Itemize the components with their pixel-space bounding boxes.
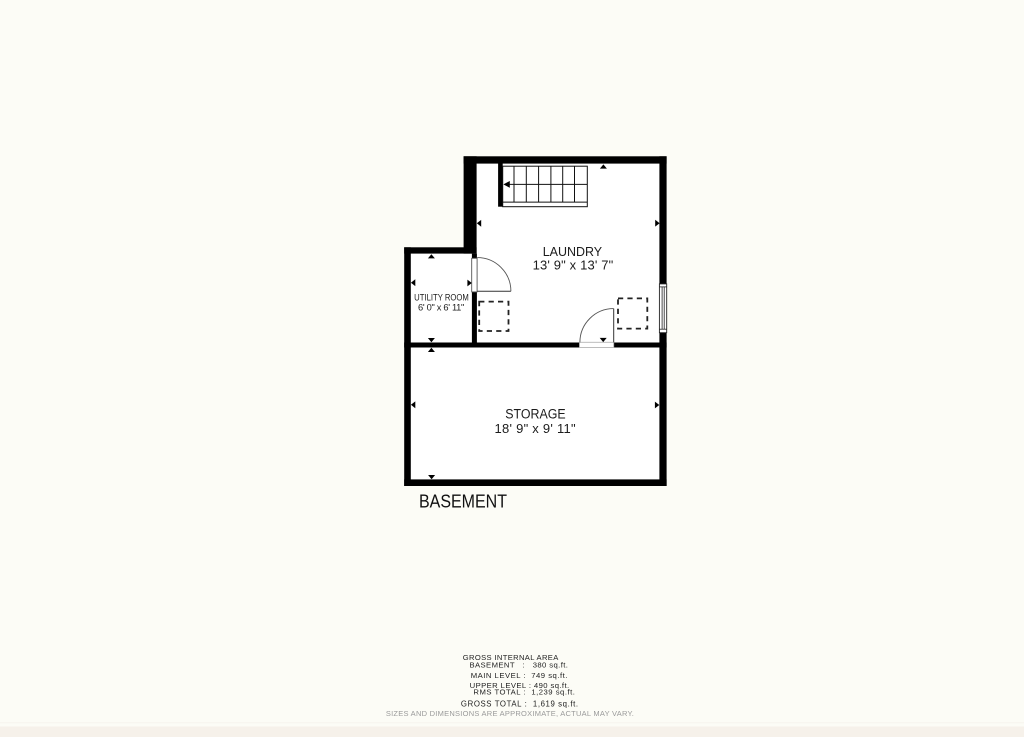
svg-text:13' 9" x 13' 7": 13' 9" x 13' 7" [533, 257, 614, 272]
svg-text:BASEMENT: BASEMENT [419, 491, 507, 512]
svg-text:RMS TOTAL : 1,239 sq.ft.: RMS TOTAL : 1,239 sq.ft. [473, 687, 575, 696]
svg-text:SIZES AND DIMENSIONS ARE APPRO: SIZES AND DIMENSIONS ARE APPROXIMATE, AC… [386, 709, 634, 718]
svg-text:STORAGE: STORAGE [505, 406, 566, 422]
svg-text:6' 0" x 6' 11": 6' 0" x 6' 11" [418, 303, 464, 313]
svg-text:18' 9" x 9' 11": 18' 9" x 9' 11" [495, 421, 576, 436]
svg-text:BASEMENT : 380 sq.ft.: BASEMENT : 380 sq.ft. [469, 661, 568, 670]
svg-text:GROSS TOTAL : 1,619 sq.ft.: GROSS TOTAL : 1,619 sq.ft. [461, 699, 579, 708]
svg-text:UTILITY ROOM: UTILITY ROOM [414, 292, 469, 303]
svg-text:MAIN LEVEL : 749 sq.ft.: MAIN LEVEL : 749 sq.ft. [471, 671, 568, 680]
